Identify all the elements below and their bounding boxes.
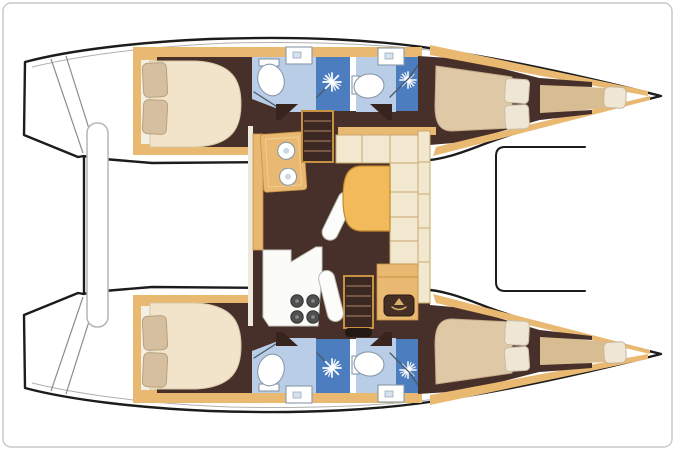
- cabinet-with-emblem: [377, 264, 418, 320]
- saloon-left-wall: [248, 126, 253, 326]
- sofa-backrest: [418, 131, 430, 303]
- galley-sink-unit: [260, 132, 307, 193]
- forward-crossbeam-bracket: [496, 147, 585, 291]
- floor-plan-canvas: [0, 0, 675, 450]
- sofa-top-row: [336, 135, 418, 163]
- saloon: [248, 111, 436, 337]
- companionway-stairs-upper: [302, 111, 333, 162]
- stair-landing: [345, 328, 372, 337]
- sofa-right-column: [390, 163, 418, 264]
- aft-platform-beam: [87, 123, 108, 327]
- boat-floor-plan: [0, 0, 675, 450]
- companionway-stairs-lower: [344, 276, 373, 337]
- dining-table: [343, 166, 390, 231]
